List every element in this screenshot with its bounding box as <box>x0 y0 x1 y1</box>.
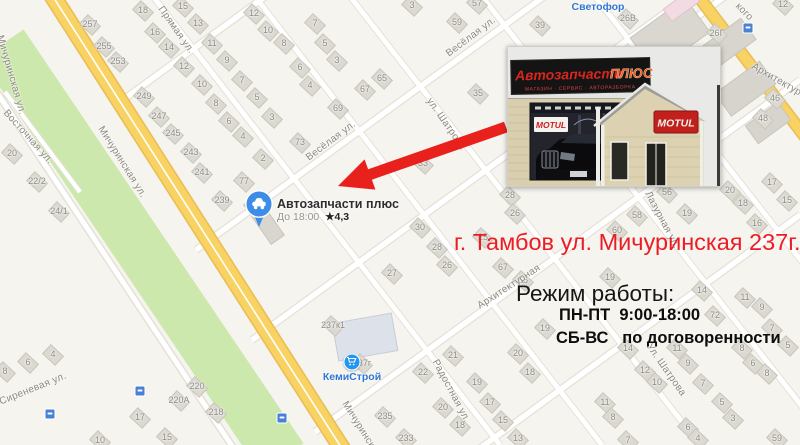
address-annotation: г. Тамбов ул. Мичуринская 237г. <box>454 229 800 256</box>
motul-banner-text: MOTUL <box>536 120 566 130</box>
sign-text-plus: ПЛЮС <box>610 65 653 81</box>
schedule-weekdays: ПН-ПТ 9:00-18:00 <box>559 306 700 325</box>
sign-text-autoparts: Автозапчасти <box>514 65 623 83</box>
schedule-weekend: СБ-ВС по договоренности <box>556 329 781 348</box>
schedule-title: Режим работы: <box>516 281 674 307</box>
red-arrow <box>338 122 508 190</box>
store-photo-inset: Автозапчасти ПЛЮС МАГАЗИН · СЕРВИС · АВТ… <box>507 46 721 187</box>
map-screenshot: 2572552532492472452432412392022/224/1864… <box>0 0 800 445</box>
photo-signboard: Автозапчасти ПЛЮС МАГАЗИН · СЕРВИС · АВТ… <box>511 57 654 94</box>
motul-wall-text: MOTUL <box>657 118 694 130</box>
